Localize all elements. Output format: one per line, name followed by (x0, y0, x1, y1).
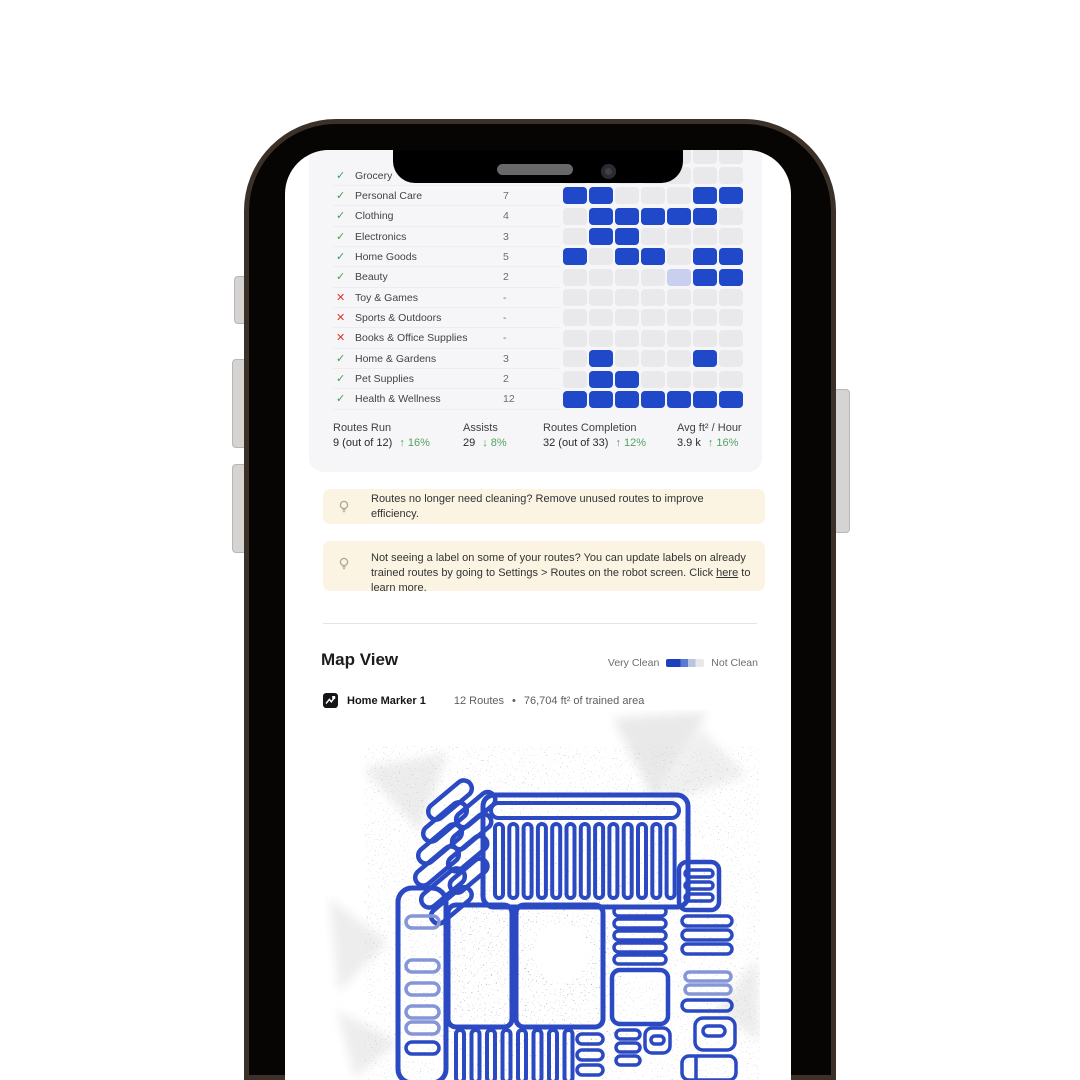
grid-cell (667, 248, 691, 265)
category-count: 2 (503, 373, 509, 385)
check-icon: ✓ (336, 270, 345, 284)
grid-cell (719, 248, 743, 265)
category-row[interactable]: ✓Personal Care7 (309, 186, 559, 206)
grid-cell (719, 269, 743, 286)
grid-cell (563, 350, 587, 367)
grid-cell (719, 330, 743, 347)
grid-cell (667, 269, 691, 286)
clean-gradient-bar (666, 659, 704, 667)
category-label: Electronics (355, 231, 406, 243)
grid-cell (641, 371, 665, 388)
grid-cell (667, 330, 691, 347)
grid-cell (589, 391, 613, 408)
category-label: Home Goods (355, 251, 417, 263)
stat-delta: ↓ 8% (482, 437, 506, 449)
grid-cell (693, 167, 717, 184)
category-label: Health & Wellness (355, 393, 441, 405)
cross-icon: ✕ (336, 331, 345, 345)
grid-cell (693, 350, 717, 367)
grid-cell (667, 371, 691, 388)
grid-cell (589, 269, 613, 286)
category-row[interactable]: ✓Clothing4 (309, 206, 559, 226)
category-label: Personal Care (355, 190, 422, 202)
here-link[interactable]: here (716, 567, 738, 579)
section-divider (323, 623, 757, 624)
category-row[interactable]: ✕Books & Office Supplies- (309, 328, 559, 348)
grid-cell (667, 187, 691, 204)
grid-cell (641, 269, 665, 286)
category-row[interactable]: ✓Home & Gardens3 (309, 349, 559, 369)
grid-cell (693, 208, 717, 225)
grid-cell (693, 330, 717, 347)
stat-label: Routes Completion (543, 422, 646, 434)
grid-cell (667, 228, 691, 245)
stat-delta: ↑ 16% (708, 437, 739, 449)
grid-cell (667, 309, 691, 326)
check-icon: ✓ (336, 230, 345, 244)
map-white-patch (534, 923, 588, 983)
lightbulb-icon (337, 557, 351, 571)
grid-cell (615, 371, 639, 388)
grid-cell (589, 208, 613, 225)
stat-block: Routes Completion32 (out of 33)↑ 12% (543, 422, 646, 449)
phone-screen: ✓Grocery✓Personal Care7✓Clothing4✓Electr… (285, 150, 791, 1080)
grid-cell (693, 371, 717, 388)
category-row[interactable]: ✓Home Goods5 (309, 247, 559, 267)
stat-delta: ↑ 12% (615, 437, 646, 449)
category-label: Grocery (355, 170, 392, 182)
grid-cell (563, 391, 587, 408)
category-count: 4 (503, 210, 509, 222)
stat-label: Avg ft² / Hour (677, 422, 742, 434)
grid-cell (615, 269, 639, 286)
grid-cell (641, 289, 665, 306)
tip-text-segment: Routes no longer need cleaning? Remove u… (371, 493, 704, 520)
grid-cell (719, 309, 743, 326)
stat-block: Routes Run9 (out of 12)↑ 16% (333, 422, 430, 449)
grid-cell (615, 309, 639, 326)
grid-cell (719, 228, 743, 245)
grid-cell (615, 350, 639, 367)
grid-cell (641, 228, 665, 245)
tip-banner-update-labels: Not seeing a label on some of your route… (323, 541, 765, 591)
tip-text: Routes no longer need cleaning? Remove u… (371, 492, 751, 522)
row-separator (333, 409, 559, 410)
grid-cell (693, 309, 717, 326)
check-icon: ✓ (336, 352, 345, 366)
grid-cell (615, 208, 639, 225)
category-label: Beauty (355, 271, 388, 283)
grid-cell (589, 289, 613, 306)
clean-legend: Very Clean Not Clean (608, 657, 758, 669)
speaker-grille (497, 164, 573, 175)
stat-value: 9 (out of 12) (333, 437, 392, 449)
grid-cell (693, 248, 717, 265)
grid-cell (667, 208, 691, 225)
category-row[interactable]: ✓Pet Supplies2 (309, 369, 559, 389)
stat-block: Avg ft² / Hour3.9 k↑ 16% (677, 422, 742, 449)
category-count: - (503, 332, 507, 344)
stat-value: 32 (out of 33) (543, 437, 608, 449)
grid-cell (563, 228, 587, 245)
lightbulb-icon (337, 500, 351, 514)
check-icon: ✓ (336, 169, 345, 183)
grid-cell (563, 289, 587, 306)
category-count: 2 (503, 271, 509, 283)
grid-cell (641, 208, 665, 225)
cross-icon: ✕ (336, 291, 345, 305)
grid-cell (719, 167, 743, 184)
grid-cell (667, 391, 691, 408)
category-label: Pet Supplies (355, 373, 414, 385)
category-count: - (503, 312, 507, 324)
grid-cell (693, 150, 717, 164)
cross-icon: ✕ (336, 311, 345, 325)
category-row[interactable]: ✓Electronics3 (309, 227, 559, 247)
stat-label: Assists (463, 422, 507, 434)
category-row[interactable]: ✓Beauty2 (309, 267, 559, 287)
stat-value: 3.9 k (677, 437, 701, 449)
grid-cell (641, 330, 665, 347)
grid-cell (719, 150, 743, 164)
category-count: 5 (503, 251, 509, 263)
stat-value: 29 (463, 437, 475, 449)
grid-cell (667, 350, 691, 367)
routes-summary-card: ✓Grocery✓Personal Care7✓Clothing4✓Electr… (309, 150, 762, 472)
category-label: Clothing (355, 210, 394, 222)
category-row[interactable]: ✓Health & Wellness12 (309, 389, 559, 409)
grid-cell (641, 248, 665, 265)
home-marker-row[interactable]: Home Marker 1 12 Routes • 76,704 ft² of … (323, 693, 644, 708)
stat-delta: ↑ 16% (399, 437, 430, 449)
grid-cell (693, 289, 717, 306)
map-view-title: Map View (321, 650, 398, 670)
grid-cell (589, 248, 613, 265)
activity-grid (563, 150, 743, 412)
grid-cell (589, 228, 613, 245)
check-icon: ✓ (336, 209, 345, 223)
front-camera (601, 164, 616, 179)
category-label: Books & Office Supplies (355, 332, 467, 344)
category-label: Home & Gardens (355, 353, 436, 365)
dot-separator: • (512, 695, 516, 707)
category-label: Toy & Games (355, 292, 418, 304)
legend-very-clean-label: Very Clean (608, 657, 659, 669)
category-row[interactable]: ✕Sports & Outdoors- (309, 308, 559, 328)
cleaning-map-canvas[interactable] (325, 710, 760, 1080)
category-row[interactable]: ✕Toy & Games- (309, 288, 559, 308)
grid-cell (589, 330, 613, 347)
grid-cell (719, 289, 743, 306)
check-icon: ✓ (336, 189, 345, 203)
grid-cell (615, 228, 639, 245)
stat-block: Assists29↓ 8% (463, 422, 507, 449)
grid-cell (719, 208, 743, 225)
trained-area: 76,704 ft² of trained area (524, 695, 644, 707)
grid-cell (719, 350, 743, 367)
grid-cell (563, 248, 587, 265)
grid-cell (563, 187, 587, 204)
power-button (834, 389, 850, 533)
category-count: 7 (503, 190, 509, 202)
legend-not-clean-label: Not Clean (711, 657, 758, 669)
grid-cell (563, 330, 587, 347)
grid-cell (615, 391, 639, 408)
check-icon: ✓ (336, 372, 345, 386)
grid-cell (693, 391, 717, 408)
grid-cell (693, 187, 717, 204)
tip-text-segment: Not seeing a label on some of your route… (371, 552, 746, 579)
grid-cell (589, 350, 613, 367)
grid-cell (589, 187, 613, 204)
grid-cell (641, 187, 665, 204)
grid-cell (719, 371, 743, 388)
notch (393, 150, 683, 183)
grid-cell (563, 371, 587, 388)
grid-cell (719, 187, 743, 204)
category-label: Sports & Outdoors (355, 312, 441, 324)
category-count: 3 (503, 353, 509, 365)
map-marker-icon (323, 693, 338, 708)
category-count: 12 (503, 393, 515, 405)
marker-name: Home Marker 1 (347, 695, 426, 707)
grid-cell (615, 330, 639, 347)
grid-cell (589, 309, 613, 326)
grid-cell (693, 269, 717, 286)
grid-cell (693, 228, 717, 245)
grid-cell (641, 350, 665, 367)
routes-count: 12 Routes (454, 695, 504, 707)
grid-cell (563, 208, 587, 225)
tip-banner-remove-routes: Routes no longer need cleaning? Remove u… (323, 489, 765, 524)
category-count: - (503, 292, 507, 304)
grid-cell (667, 289, 691, 306)
grid-cell (641, 391, 665, 408)
stat-label: Routes Run (333, 422, 430, 434)
grid-cell (563, 269, 587, 286)
grid-cell (615, 248, 639, 265)
grid-cell (719, 391, 743, 408)
grid-cell (615, 187, 639, 204)
check-icon: ✓ (336, 392, 345, 406)
category-count: 3 (503, 231, 509, 243)
grid-cell (641, 309, 665, 326)
grid-cell (563, 309, 587, 326)
tip-text: Not seeing a label on some of your route… (371, 551, 751, 596)
map-noise-dense (443, 892, 613, 1037)
grid-cell (615, 289, 639, 306)
grid-cell (589, 371, 613, 388)
check-icon: ✓ (336, 250, 345, 264)
